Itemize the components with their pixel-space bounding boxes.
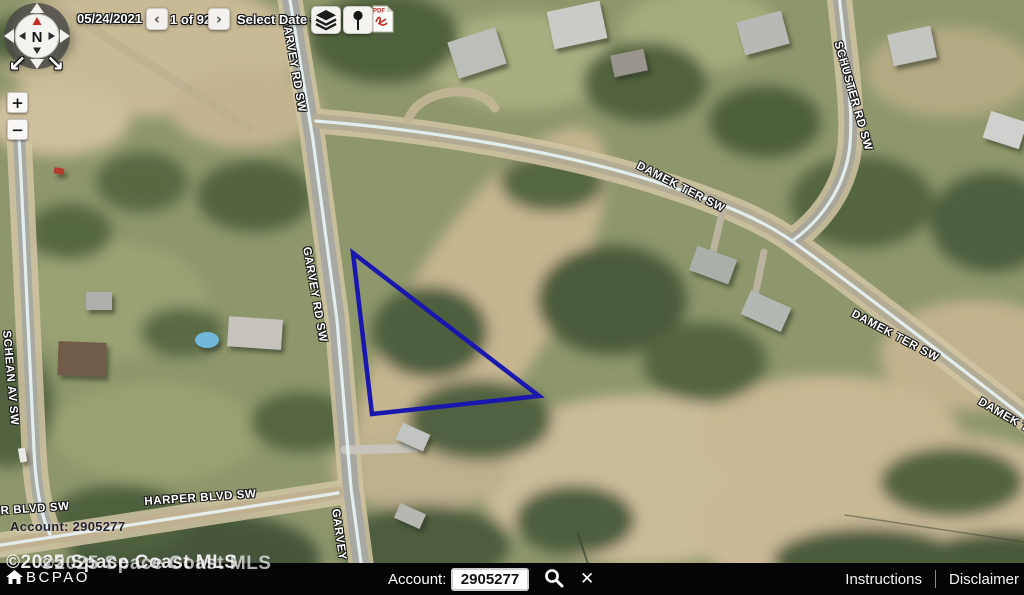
bcpao-map-viewer: GARVEY RD SWGARVEY RD SWGARVEY RD SDAMEK…	[0, 0, 1024, 595]
export-pdf-button[interactable]: PDF	[371, 5, 394, 33]
select-date-label: Select Date	[237, 12, 307, 27]
previous-date-button[interactable]: ‹	[146, 8, 168, 30]
account-label: Account:	[388, 571, 446, 588]
pushpin-icon	[346, 9, 370, 31]
select-date-dropdown[interactable]: Select Date▾	[237, 12, 315, 27]
instructions-link[interactable]: Instructions	[845, 571, 922, 588]
zoom-in-button[interactable]: +	[7, 92, 28, 113]
rotate-left-arrow-icon[interactable]: ↙	[8, 52, 26, 77]
links-divider	[935, 570, 936, 588]
aerial-imagery	[0, 0, 1024, 563]
clear-search-button[interactable]: ✕	[580, 569, 594, 589]
account-number-input[interactable]	[451, 568, 529, 591]
rotate-right-arrow-icon[interactable]: ↘	[46, 52, 64, 77]
zoom-out-button[interactable]: −	[7, 119, 28, 140]
layers-button[interactable]	[311, 6, 341, 34]
layers-icon	[314, 9, 338, 31]
disclaimer-link[interactable]: Disclaimer	[949, 571, 1019, 588]
search-icon	[543, 567, 565, 589]
aerial-date: 05/24/2021	[77, 11, 142, 26]
streetview-pin-button[interactable]	[343, 6, 373, 34]
bcpao-logo: BCPAO	[6, 569, 90, 586]
pdf-file-icon: PDF	[371, 5, 394, 33]
bcpao-logo-text: BCPAO	[26, 569, 90, 586]
house-icon	[6, 570, 23, 585]
date-index: 1 of 92	[170, 12, 211, 27]
next-date-button[interactable]: ›	[208, 8, 230, 30]
aerial-map-canvas[interactable]: GARVEY RD SWGARVEY RD SWGARVEY RD SDAMEK…	[0, 0, 1024, 563]
parcel-account-overlay: Account: 2905277	[10, 519, 125, 534]
pdf-icon-label: PDF	[373, 9, 385, 15]
search-button[interactable]	[543, 567, 565, 592]
compass-north-label: N	[32, 29, 43, 46]
